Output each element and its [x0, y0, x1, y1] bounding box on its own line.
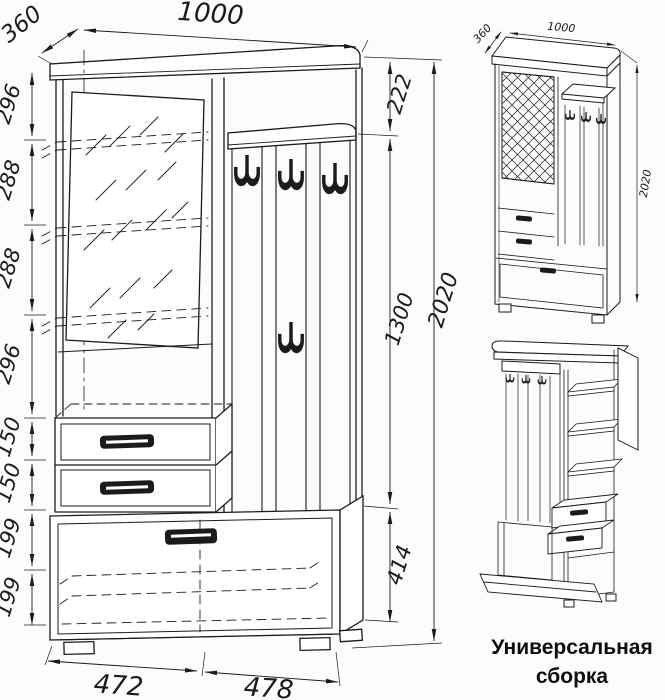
iso-view-assembled: 360 1000 2020 — [471, 20, 655, 323]
drawer-unit — [55, 404, 232, 512]
dim-label-top-depth: 360 — [0, 1, 47, 49]
drawing-sheet: 1000 360 296 288 288 296 150 150 199 199 — [0, 0, 665, 700]
right-dimension-chain: 222 1300 414 — [380, 62, 419, 622]
coat-hook-icon — [278, 159, 304, 190]
dim-label-left-0: 296 — [0, 81, 26, 126]
bottom-dimension-chain: 472 478 — [48, 661, 338, 700]
coat-hook-icon — [565, 110, 575, 120]
right-shelf — [228, 124, 356, 149]
iso-drawer-handle — [516, 238, 532, 244]
left-dimension-chain: 296 288 288 296 150 150 199 199 — [0, 73, 32, 625]
dim-label-left-3: 296 — [0, 341, 26, 386]
top-board — [50, 46, 360, 80]
coat-hook-icon — [596, 114, 606, 124]
dim-label-left-5: 150 — [0, 460, 26, 505]
coat-hook-icon — [506, 374, 515, 382]
front-view — [42, 46, 363, 655]
assembly-caption: Универсальная сборка — [482, 633, 662, 691]
coat-hook-icon — [538, 376, 547, 384]
iso2-lower-compartment — [498, 522, 552, 580]
coat-hook-icon — [278, 322, 304, 353]
dim-label-right-0: 222 — [382, 71, 417, 116]
drawer-handle — [100, 434, 154, 449]
coat-hook-icon — [581, 112, 591, 122]
iso2-side-panel — [618, 348, 638, 450]
iso2-open-flap-door — [480, 574, 602, 602]
coat-hook-icon — [522, 375, 531, 383]
dim-label-overall-height: 2020 — [424, 270, 464, 331]
iso-mirror-panel — [502, 72, 554, 184]
iso-door-handle — [540, 267, 556, 273]
dim-label-top-width: 1000 — [177, 0, 245, 31]
iso2-hook-rail — [502, 361, 560, 374]
technical-drawing: 1000 360 296 288 288 296 150 150 199 199 — [0, 0, 665, 700]
dim-label-bottom-0: 472 — [93, 669, 145, 700]
dim-label-right-1: 1300 — [380, 290, 419, 348]
dim-label-left-7: 199 — [0, 574, 26, 619]
dim-label-left-2: 288 — [0, 245, 26, 290]
door-handle — [165, 528, 217, 545]
coat-hook-icon — [234, 155, 260, 186]
dim-label-bottom-1: 478 — [243, 672, 295, 700]
iso-dim-depth: 360 — [471, 22, 495, 46]
shoe-cabinet — [50, 496, 363, 640]
dim-label-left-1: 288 — [0, 157, 26, 202]
dim-label-right-2: 414 — [382, 542, 417, 587]
iso-drawers — [498, 208, 554, 260]
dim-label-left-4: 150 — [0, 414, 26, 459]
iso2-open-drawers — [548, 494, 618, 554]
iso-dim-width: 1000 — [547, 20, 576, 35]
mirror-panel — [42, 92, 212, 352]
coat-hook-icon — [322, 163, 348, 194]
iso-view-open — [480, 341, 638, 607]
left-stiles — [56, 80, 63, 416]
iso-dim-height: 2020 — [637, 169, 654, 199]
dim-label-left-6: 199 — [0, 515, 26, 560]
iso-drawer-handle — [516, 215, 532, 221]
drawer-handle — [100, 480, 154, 495]
